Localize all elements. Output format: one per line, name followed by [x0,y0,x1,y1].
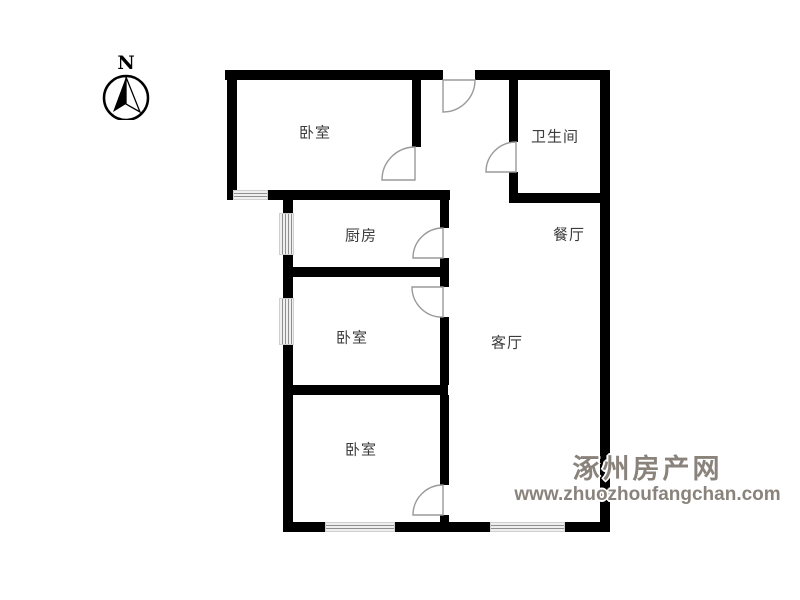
room-label-bathroom: 卫生间 [531,130,579,145]
door-bedroom-top [382,147,415,180]
room-label-kitchen: 厨房 [345,229,377,244]
door-entry [443,80,475,112]
room-label-bedroom-middle: 卧室 [336,331,368,346]
room-label-living: 客厅 [491,336,523,351]
floor-plan-image: N 卧室 卫生间 厨房 餐厅 卧室 [0,0,800,600]
room-label-bedroom-bottom: 卧室 [345,443,377,458]
room-label-dining: 餐厅 [553,228,585,243]
watermark-site-url: www.zhuozhoufangchan.com [505,485,790,506]
watermark: 涿州房产网 www.zhuozhoufangchan.com [505,455,790,506]
door-bedroom-bottom [413,485,443,515]
door-bathroom [486,142,516,172]
room-label-bedroom-top: 卧室 [299,126,331,141]
door-bedroom-middle [412,287,443,317]
door-symbols-layer [0,0,800,600]
watermark-site-name: 涿州房产网 [505,455,790,485]
door-kitchen [413,228,443,258]
